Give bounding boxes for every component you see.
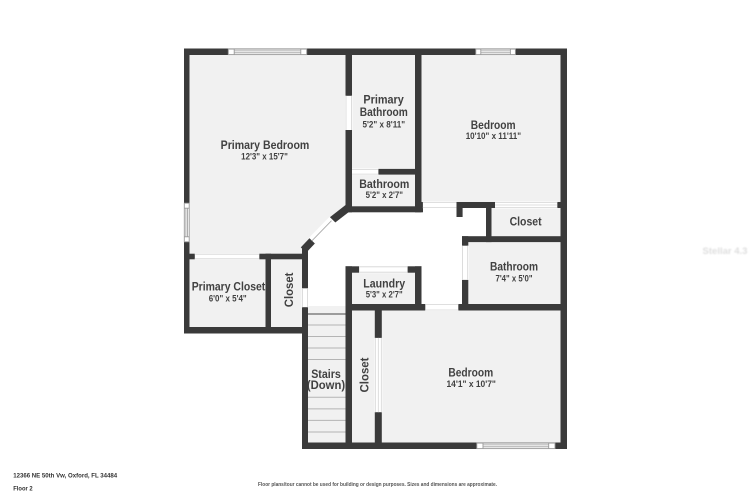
svg-text:Floor 2: Floor 2 [13, 486, 33, 493]
svg-text:10'10" x 11'11": 10'10" x 11'11" [466, 131, 521, 141]
svg-text:12'3" x 15'7": 12'3" x 15'7" [241, 151, 288, 161]
svg-text:Bedroom: Bedroom [448, 368, 493, 380]
svg-text:Primary Closet: Primary Closet [192, 282, 266, 294]
svg-text:7'4" x 5'0": 7'4" x 5'0" [496, 274, 533, 284]
svg-text:6'0" x 5'4": 6'0" x 5'4" [209, 294, 247, 304]
svg-text:Floor plans/tour cannot be use: Floor plans/tour cannot be used for buil… [258, 482, 498, 488]
svg-text:14'1" x 10'7": 14'1" x 10'7" [446, 379, 496, 389]
svg-text:Primary: Primary [363, 95, 404, 107]
svg-text:Bathroom: Bathroom [360, 107, 408, 119]
svg-text:Closet: Closet [510, 216, 542, 228]
svg-text:Bathroom: Bathroom [490, 262, 538, 274]
svg-text:5'2" x 2'7": 5'2" x 2'7" [366, 190, 403, 200]
svg-text:Closet: Closet [284, 272, 296, 307]
svg-text:5'2" x 8'11": 5'2" x 8'11" [363, 120, 406, 130]
svg-text:Bathroom: Bathroom [359, 179, 409, 191]
svg-text:Stairs: Stairs [311, 369, 341, 381]
svg-text:Primary Bedroom: Primary Bedroom [221, 140, 310, 152]
svg-text:5'3" x 2'7": 5'3" x 2'7" [366, 290, 403, 300]
svg-text:Closet: Closet [360, 357, 372, 392]
svg-text:Stellar 4.3: Stellar 4.3 [703, 246, 748, 257]
svg-text:(Down): (Down) [307, 380, 345, 392]
svg-text:12366 NE 50th Vw, Oxford, FL 3: 12366 NE 50th Vw, Oxford, FL 34484 [13, 473, 117, 480]
